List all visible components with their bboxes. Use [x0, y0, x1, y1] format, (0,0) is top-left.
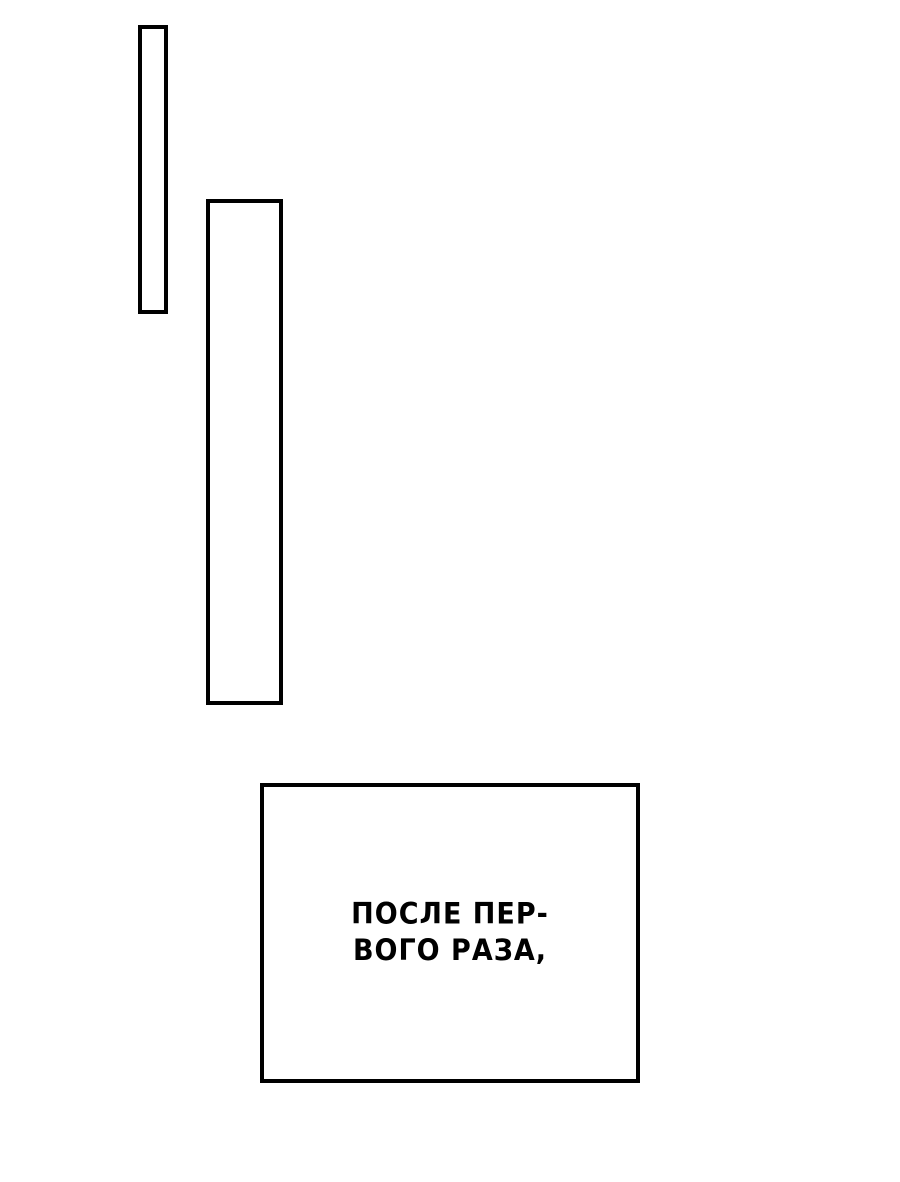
caption-text: ПОСЛЕ ПЕР- ВОГО РАЗА,	[351, 896, 549, 969]
comic-page: { "page": { "background_color": "#ffffff…	[0, 0, 900, 1182]
caption-line-1: ПОСЛЕ ПЕР-	[351, 896, 549, 933]
comic-panel-thin	[138, 25, 168, 314]
comic-panel-tall	[206, 199, 283, 705]
caption-line-2: ВОГО РАЗА,	[351, 933, 549, 970]
caption-box: ПОСЛЕ ПЕР- ВОГО РАЗА,	[260, 783, 640, 1083]
